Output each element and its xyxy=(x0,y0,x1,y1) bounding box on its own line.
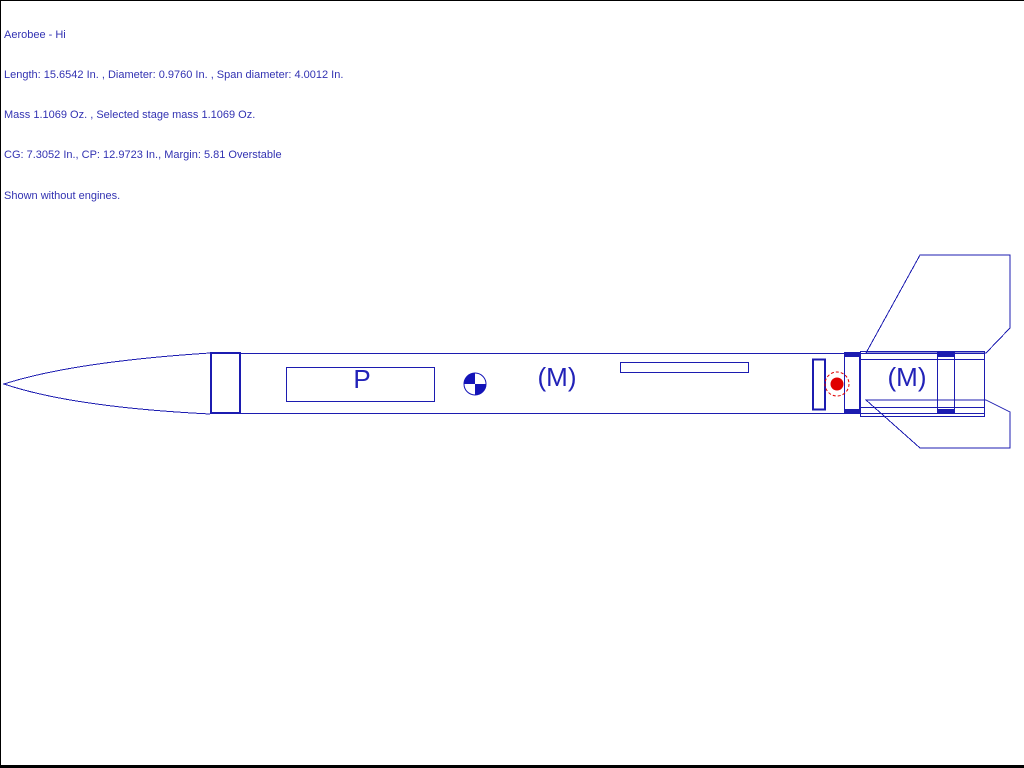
mass-object-aft-label[interactable]: (M) xyxy=(888,362,927,392)
parachute-label: P xyxy=(353,364,370,394)
nose-cone[interactable] xyxy=(4,353,210,414)
launch-lug[interactable] xyxy=(621,363,749,373)
cg-marker-quadrant-nw xyxy=(464,373,475,384)
cp-marker xyxy=(825,372,849,396)
mass-object-forward-label[interactable]: (M) xyxy=(538,362,577,392)
cp-marker-dot xyxy=(831,378,844,391)
engine-block[interactable] xyxy=(813,360,825,410)
cg-marker-quadrant-se xyxy=(475,384,486,395)
window-border-top xyxy=(0,0,1024,1)
ring-forward-top-cap xyxy=(844,352,860,357)
centering-ring-forward[interactable] xyxy=(845,353,860,414)
ring-aft-top-cap xyxy=(937,352,955,357)
nose-shoulder[interactable] xyxy=(211,353,240,413)
body-tube[interactable] xyxy=(211,354,985,414)
centering-ring-aft[interactable] xyxy=(938,353,955,414)
fin-upper[interactable] xyxy=(866,255,1010,353)
design-view: Aerobee - Hi Length: 15.6542 In. , Diame… xyxy=(0,0,1024,768)
window-border-left xyxy=(0,0,1,768)
ring-aft-bottom-cap xyxy=(937,409,955,414)
ring-forward-bottom-cap xyxy=(844,409,860,414)
rocket-design-canvas: P (M) (M) xyxy=(0,0,1024,768)
cg-marker xyxy=(464,373,486,395)
